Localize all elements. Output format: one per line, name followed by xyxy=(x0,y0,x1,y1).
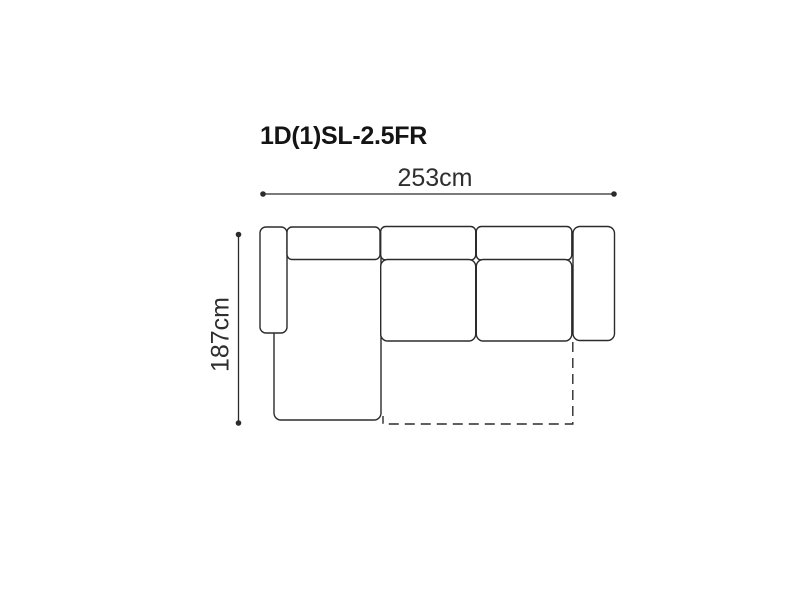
width-dimension-endpoint-left xyxy=(260,191,266,197)
left-armrest-outline xyxy=(260,227,287,333)
sofa-outline xyxy=(260,227,615,421)
fold-out-bed-dashed-outline xyxy=(383,342,573,424)
sofa-floorplan-drawing xyxy=(0,0,800,600)
height-dimension-endpoint-top xyxy=(236,232,242,238)
seat-cushion-1-outline xyxy=(381,260,476,342)
seat-cushion-2-outline xyxy=(476,260,572,342)
right-armrest-outline xyxy=(573,227,615,341)
backrest-cushion-3-outline xyxy=(476,227,572,261)
width-dimension-endpoint-right xyxy=(611,191,617,197)
chaise-longue-seat-outline xyxy=(274,239,381,420)
height-dimension xyxy=(236,232,242,426)
width-dimension xyxy=(260,191,617,197)
backrest-cushion-1-outline xyxy=(287,227,380,260)
diagram-canvas: 1D(1)SL-2.5FR 253cm 187cm xyxy=(0,0,800,600)
height-dimension-endpoint-bottom xyxy=(236,420,242,426)
backrest-cushion-2-outline xyxy=(381,227,476,261)
